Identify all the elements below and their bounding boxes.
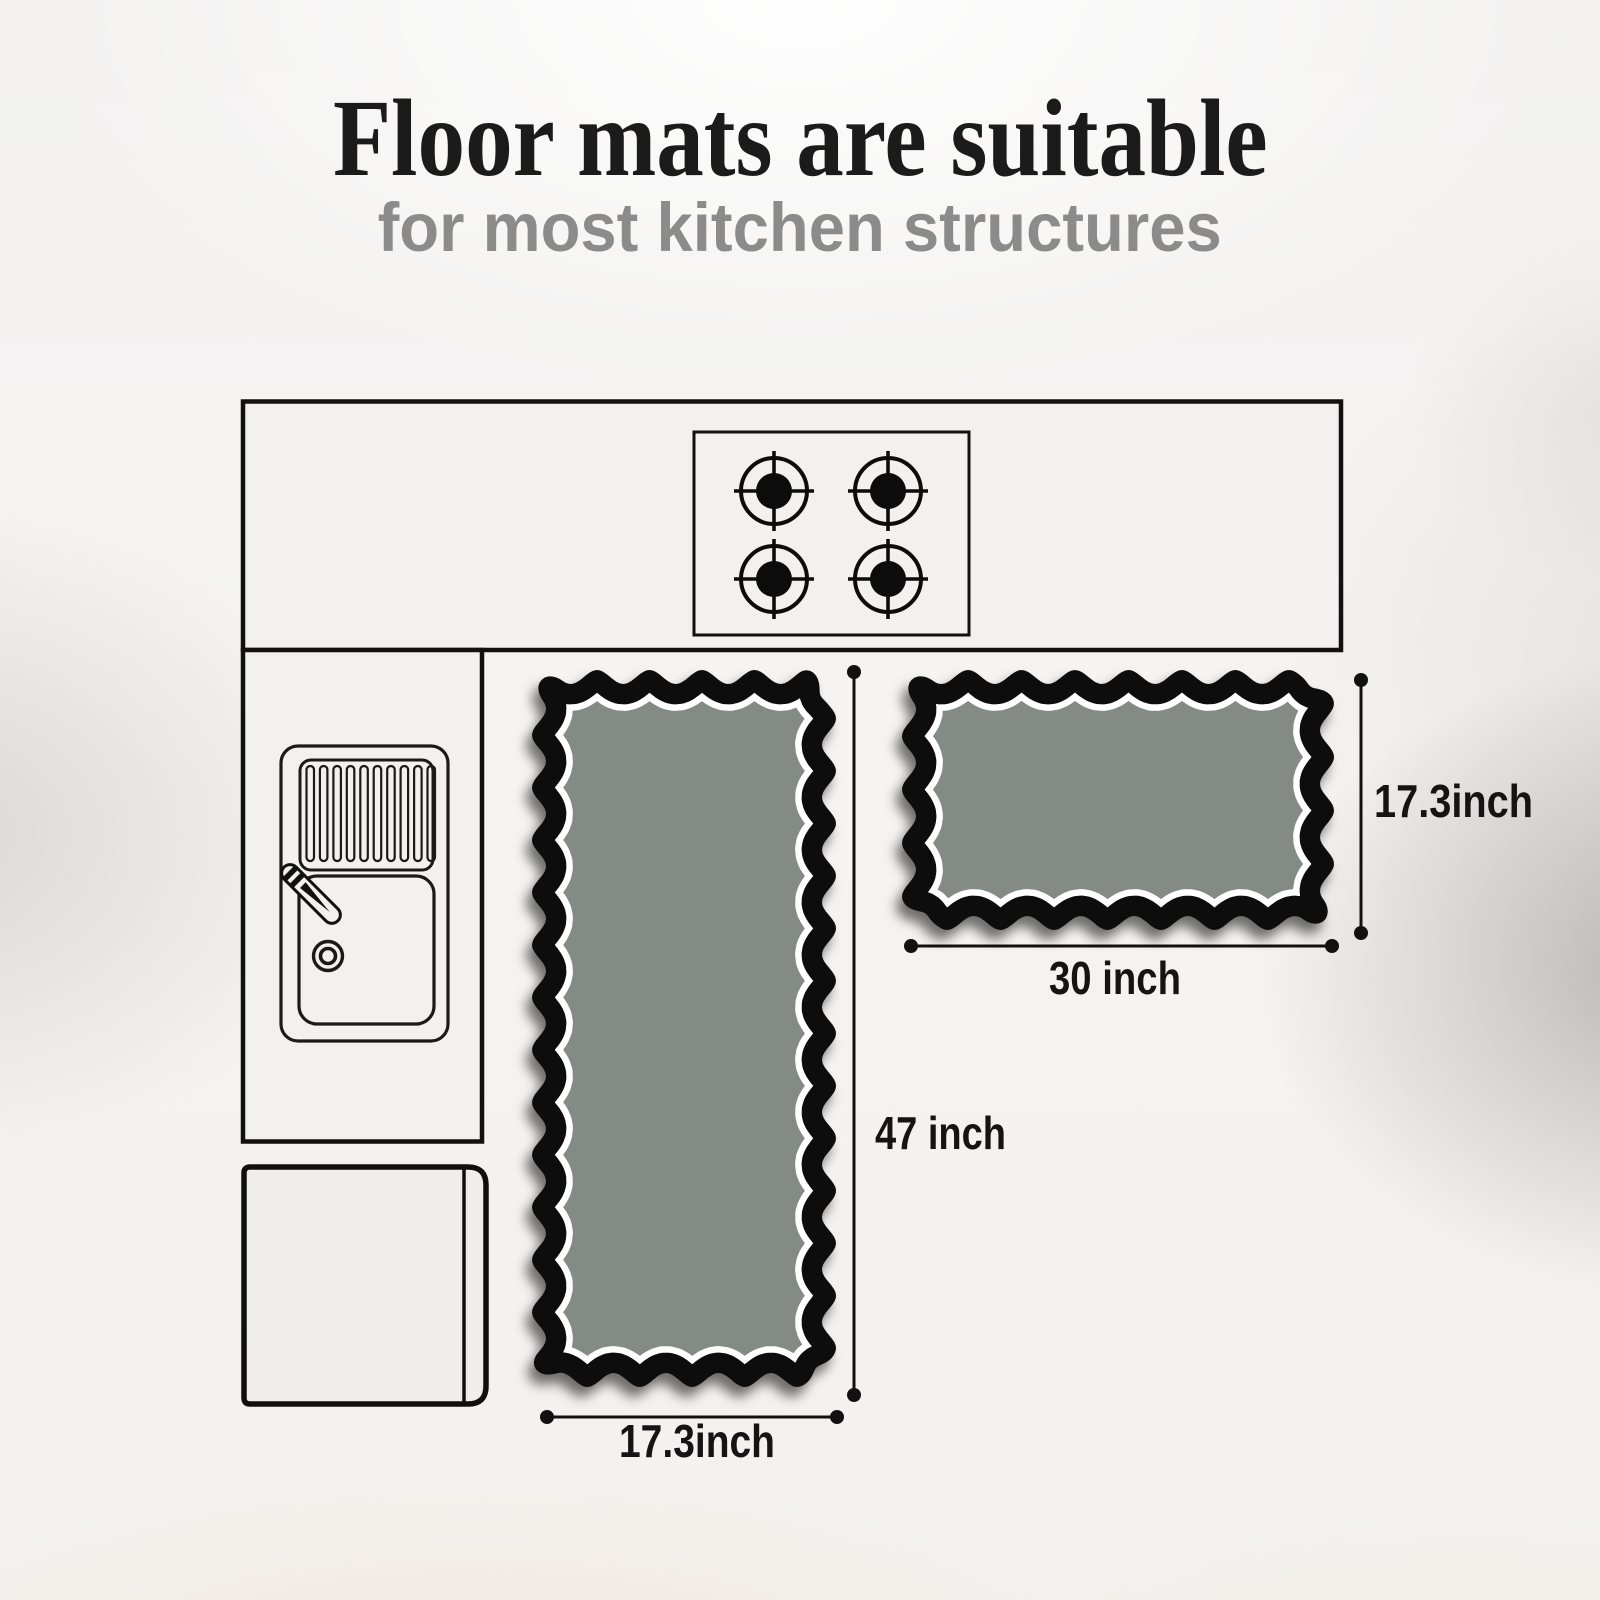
svg-text:17.3inch: 17.3inch <box>1374 775 1533 827</box>
svg-text:30 inch: 30 inch <box>1049 952 1181 1004</box>
svg-text:47 inch: 47 inch <box>875 1107 1006 1159</box>
svg-text:17.3inch: 17.3inch <box>619 1415 775 1467</box>
